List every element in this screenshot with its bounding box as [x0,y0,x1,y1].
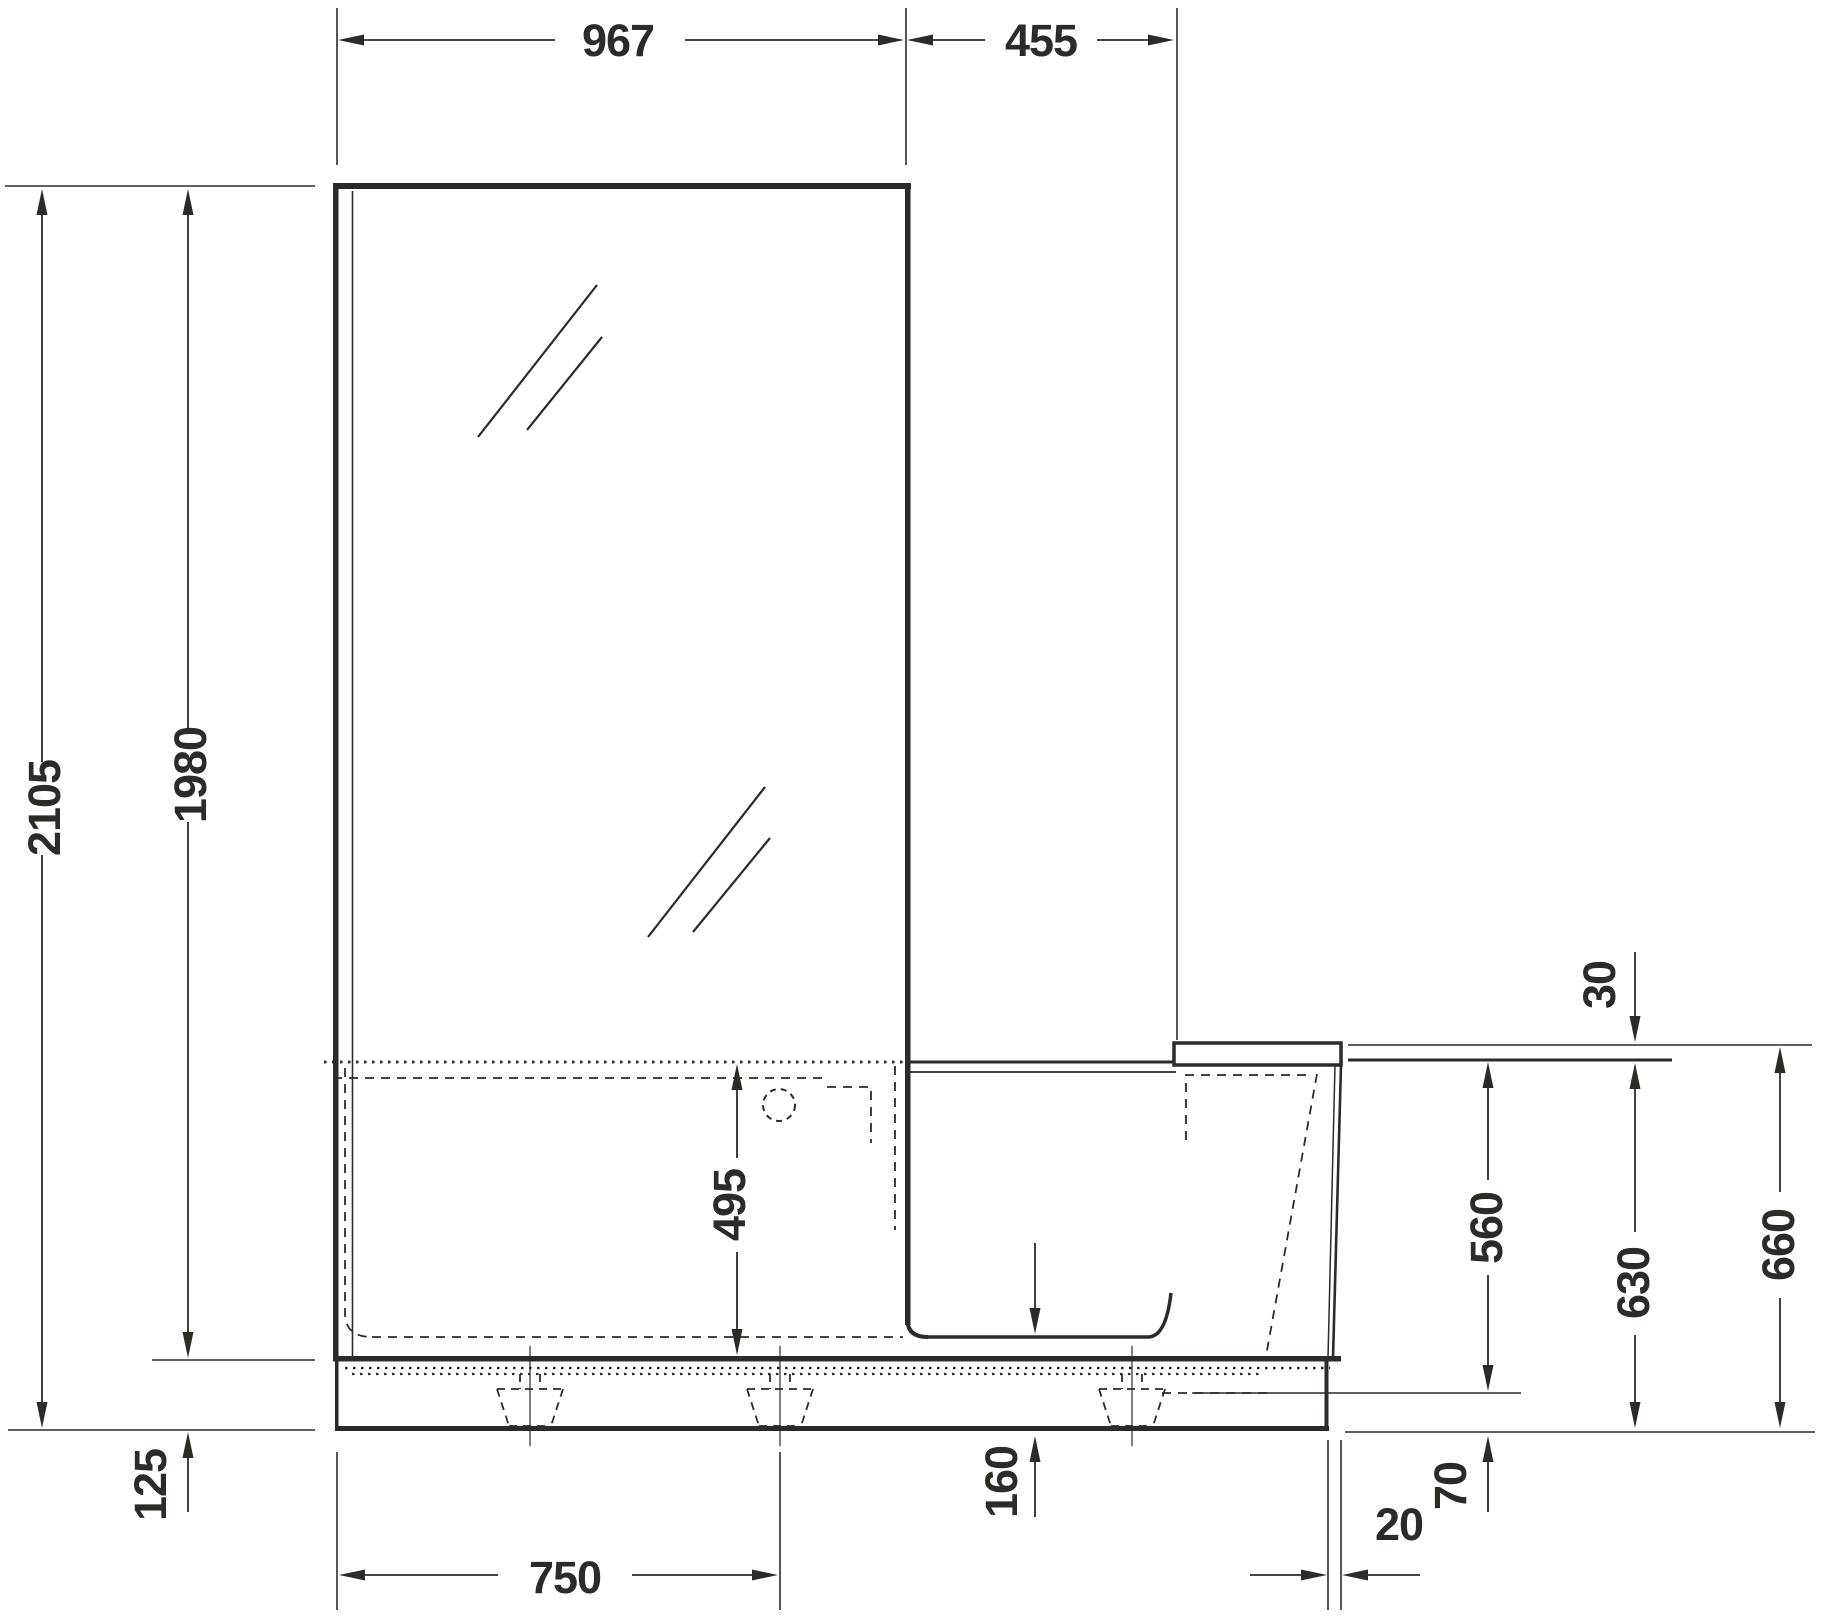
dim-rim-to-shower-floor: 560 [1461,1062,1512,1391]
glass-left-edge [333,189,339,1360]
drawing-canvas: 967 455 2105 1980 125 [0,0,1821,1617]
dim-label-rim-height: 630 [1608,1247,1659,1319]
dimension-annotations: 967 455 2105 1980 125 [19,15,1804,1603]
drain-circle [763,1089,795,1121]
dim-label-panel-offset: 20 [1375,1499,1423,1550]
glass-top-edge [333,183,911,189]
plinth-left-edge [335,1361,339,1427]
arrowhead-down [1030,1308,1041,1334]
dim-label-glass-width: 967 [582,15,654,66]
plinth-bottom-edge [335,1426,1329,1431]
dim-label-foot-spacing: 750 [529,1552,601,1603]
tub-bottom-edge [333,1356,1341,1362]
arrowhead-left [339,1570,365,1581]
glass-bottom-curve [908,1320,929,1337]
arrowhead-right [1148,35,1174,46]
dim-door-section-width: 455 [907,15,1174,66]
tub-floor-visible [928,1293,1171,1337]
arrowhead-down [1775,1402,1786,1428]
dim-label-rim-to-shower-floor: 560 [1461,1192,1512,1264]
dim-label-tub-floor-height: 160 [976,1446,1027,1518]
dim-panel-offset: 20 [1250,1499,1423,1581]
arrowhead-down [732,1329,743,1355]
arrowhead-up [183,1432,194,1458]
dim-label-shower-floor-height: 70 [1425,1462,1476,1510]
bathtub [324,1062,1341,1431]
arrowhead-up [1630,1063,1641,1089]
technical-drawing: 967 455 2105 1980 125 [0,0,1821,1617]
dim-tub-floor-height: 160 [976,1243,1041,1518]
plinth-right-edge [1325,1361,1329,1431]
dim-label-door-section-width: 455 [1005,15,1077,66]
dim-label-seat-step: 30 [1574,961,1625,1009]
tub-left-wall-hidden [345,1068,372,1337]
dim-label-total-height: 2105 [19,760,70,856]
backrest-hidden-line [1266,1074,1317,1356]
dim-label-base-height: 125 [125,1449,176,1521]
arrowhead-down [183,1332,194,1358]
dim-label-seat-surface-height: 660 [1753,1209,1804,1281]
dim-seat-surface-height: 660 [1753,1047,1804,1428]
dim-shower-floor-height: 70 [1425,1436,1494,1512]
arrowhead-up [1483,1436,1494,1462]
overflow-hidden-contour [827,1087,871,1143]
glass-panel [333,183,928,1360]
arrowhead-down [1630,1016,1641,1042]
dim-seat-step: 30 [1574,952,1641,1042]
dim-base-height: 125 [125,1432,194,1521]
arrowhead-right [1301,1570,1327,1581]
arrowhead-up [1483,1062,1494,1088]
dim-glass-width: 967 [338,15,904,66]
arrowhead-left [338,35,364,46]
dim-label-tub-inner-depth: 495 [704,1169,755,1241]
arrowhead-right [752,1570,778,1581]
glass-reflection-marks [478,285,770,937]
dim-tub-inner-depth: 495 [704,1064,755,1355]
arrowhead-up [37,189,48,215]
arrowhead-up [183,189,194,215]
dim-glass-height: 1980 [165,189,216,1358]
seat-top-block [1174,1043,1341,1065]
seat-inner-hidden-contour [1186,1075,1310,1140]
arrowhead-up [1030,1436,1041,1462]
dim-foot-spacing: 750 [339,1552,778,1603]
arrowhead-down [1630,1402,1641,1428]
arrowhead-up [732,1064,743,1090]
arrowhead-up [1775,1047,1786,1073]
dim-label-glass-height: 1980 [165,727,216,823]
arrowhead-left [907,35,933,46]
arrowhead-right [878,35,904,46]
glass-right-edge [905,189,911,1325]
seat-section [1174,1043,1341,1358]
dim-rim-height: 630 [1608,1063,1659,1428]
arrowhead-down [1483,1365,1494,1391]
arrowhead-down [37,1402,48,1428]
dim-total-height: 2105 [19,189,70,1428]
arrowhead-left [1342,1570,1368,1581]
